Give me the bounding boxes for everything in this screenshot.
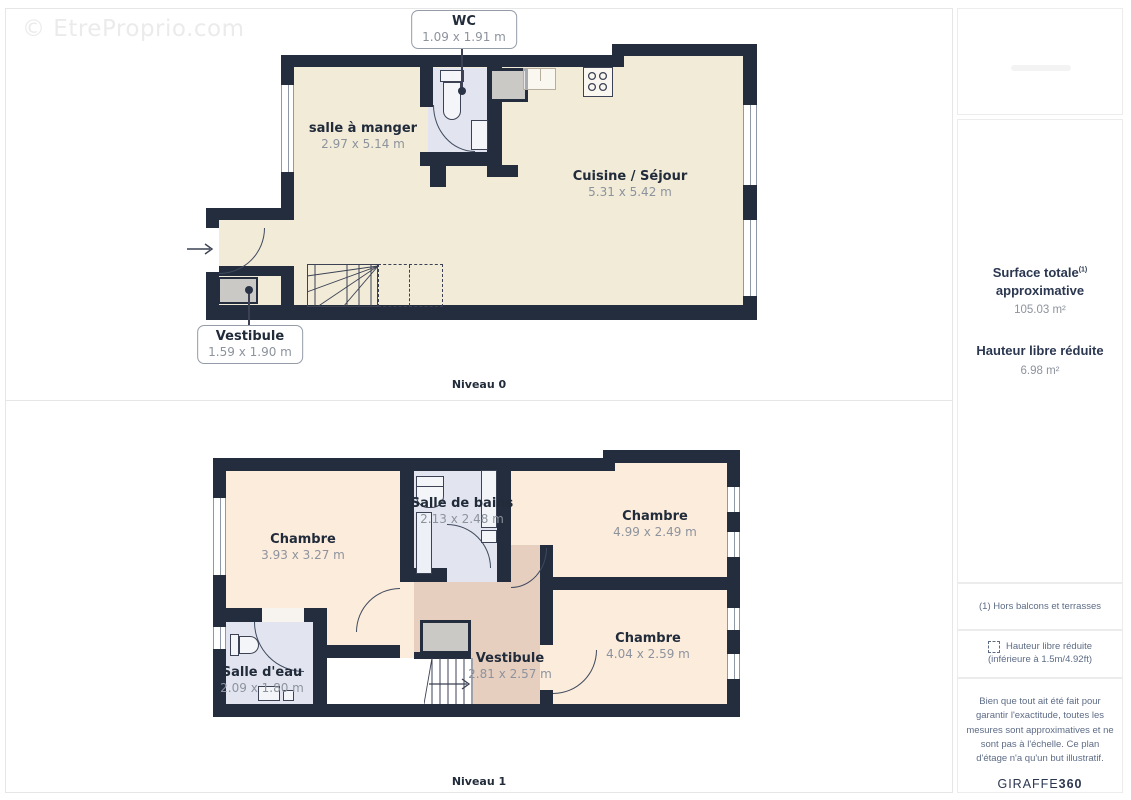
vestibule-callout: Vestibule 1.59 x 1.90 m [197, 325, 303, 364]
wall [612, 44, 743, 56]
hauteur-value: 6.98 m² [958, 365, 1122, 377]
entrance-arrow-icon [186, 242, 216, 256]
callout-leader [461, 48, 463, 90]
room-dims: 2.09 x 1.80 m [220, 681, 304, 695]
wall [540, 690, 553, 704]
room-label-salle-a-manger: salle à manger 2.97 x 5.14 m [309, 121, 417, 151]
stairs-dashed-icon [378, 264, 443, 307]
sidebar-logo-box [957, 8, 1123, 115]
room-label-salle-de-bains: Salle de bains 2.13 x 2.48 m [411, 496, 514, 526]
room-name: Chambre [606, 631, 690, 646]
room-name: Vestibule [468, 651, 552, 666]
sink-icon [523, 68, 556, 90]
brand-suffix: 360 [1059, 777, 1083, 791]
room-name: Salle d'eau [220, 665, 304, 680]
wall [430, 166, 446, 187]
surface-title-text: Surface totale [993, 265, 1079, 280]
legend-line1: Hauteur libre réduite [1006, 640, 1092, 653]
surface-value: 105.03 m² [958, 304, 1122, 316]
closet [420, 620, 471, 654]
level-caption-1: Niveau 1 [452, 775, 506, 788]
room-dims: 4.04 x 2.59 m [606, 647, 690, 661]
surface-title-sup: (1) [1079, 267, 1088, 274]
sidebar-disclaimer-box: Bien que tout ait été fait pour garantir… [957, 678, 1123, 793]
stairs-icon [307, 264, 378, 307]
window [213, 627, 226, 649]
room-dims: 1.59 x 1.90 m [208, 345, 292, 359]
brand-name: GIRAFFE [997, 777, 1058, 791]
room-label-chambre-se: Chambre 4.04 x 2.59 m [606, 631, 690, 661]
wall [420, 152, 487, 166]
room-name: Cuisine / Séjour [573, 169, 688, 184]
stairs-dashed-tread-icon [409, 265, 410, 306]
room-name: WC [422, 14, 506, 29]
callout-dot [458, 87, 466, 95]
room-dims: 4.99 x 2.49 m [613, 525, 697, 539]
room-label-cuisine-sejour: Cuisine / Séjour 5.31 x 5.42 m [573, 169, 688, 199]
surface-title-text2: approximative [996, 283, 1084, 298]
room-dims: 1.09 x 1.91 m [422, 30, 506, 44]
toilet-icon [230, 634, 239, 656]
window [743, 220, 757, 296]
window [213, 498, 226, 575]
wall [206, 305, 757, 320]
door-opening [262, 608, 304, 622]
wall [540, 577, 740, 590]
level-caption-0: Niveau 0 [452, 378, 506, 391]
window [727, 608, 740, 630]
room-name: Salle de bains [411, 496, 514, 511]
window [727, 654, 740, 679]
room-dims: 2.13 x 2.48 m [411, 512, 514, 526]
sidebar-summary-box: Surface totale(1)approximative 105.03 m²… [957, 119, 1123, 583]
room-dims: 2.81 x 2.57 m [468, 667, 552, 681]
sidebar-legend-box: Hauteur libre réduite (inférieure à 1.5m… [957, 630, 1123, 678]
wall [487, 165, 518, 177]
reduced-height-legend-icon [988, 641, 1000, 653]
room-name: salle à manger [309, 121, 417, 136]
room-dims: 5.31 x 5.42 m [573, 185, 688, 199]
stairs-icon [424, 658, 474, 704]
wall [327, 645, 400, 658]
window [743, 105, 757, 185]
wall [420, 67, 433, 107]
wall [206, 208, 294, 220]
watermark: © EtreProprio.com [22, 16, 245, 42]
hauteur-title: Hauteur libre réduite [958, 342, 1122, 360]
room-dims: 3.93 x 3.27 m [261, 548, 345, 562]
panel-divider [6, 400, 952, 401]
wall [213, 704, 740, 717]
bathtub-line-icon [417, 486, 443, 487]
wall [603, 450, 740, 463]
room-label-vestibule1: Vestibule 2.81 x 2.57 m [468, 651, 552, 681]
callout-dot [245, 286, 253, 294]
wall [281, 266, 294, 305]
sidebar-footnote-box: (1) Hors balcons et terrasses [957, 583, 1123, 630]
window [727, 487, 740, 512]
wall [612, 44, 624, 67]
faded-logo-icon [1011, 65, 1071, 71]
washbasin-icon [481, 530, 497, 543]
legend-row: Hauteur libre réduite [958, 640, 1122, 653]
footnote-text: (1) Hors balcons et terrasses [979, 600, 1101, 613]
surface-title: Surface totale(1)approximative [958, 264, 1122, 299]
room-dims: 2.97 x 5.14 m [309, 137, 417, 151]
room-label-salle-deau: Salle d'eau 2.09 x 1.80 m [220, 665, 304, 695]
wc-callout: WC 1.09 x 1.91 m [411, 10, 517, 49]
window [281, 85, 294, 172]
room-name: Chambre [613, 509, 697, 524]
window [727, 532, 740, 557]
callout-leader [248, 292, 250, 326]
room-fill-kitchen-notch [624, 55, 743, 69]
stove-burners-icon [584, 68, 611, 95]
sink-tap-icon [540, 69, 542, 81]
room-name: Chambre [261, 532, 345, 547]
room-name: Vestibule [208, 329, 292, 344]
disclaimer-text: Bien que tout ait été fait pour garantir… [965, 695, 1115, 766]
stove-icon [583, 67, 613, 97]
wall [313, 622, 327, 704]
wall [281, 55, 624, 67]
room-label-chambre-nw: Chambre 3.93 x 3.27 m [261, 532, 345, 562]
giraffe360-logo: GIRAFFE360 [958, 777, 1122, 791]
floorplan-page: { "watermark": "© EtreProprio.com", "pla… [0, 0, 1131, 800]
room-label-chambre-ne: Chambre 4.99 x 2.49 m [613, 509, 697, 539]
wall [213, 458, 615, 471]
wall [603, 450, 615, 471]
surface-block: Surface totale(1)approximative 105.03 m²… [958, 264, 1122, 377]
legend-line2: (inférieure à 1.5m/4.92ft) [958, 653, 1122, 666]
